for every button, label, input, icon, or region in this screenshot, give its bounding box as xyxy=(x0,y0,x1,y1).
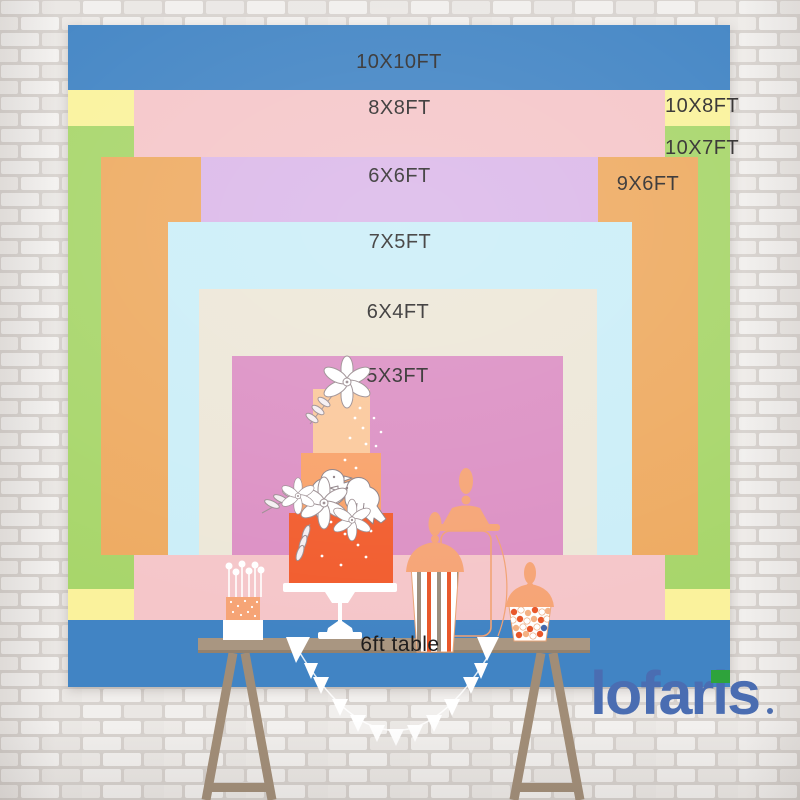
cake-pop-stand-icon xyxy=(223,561,265,641)
three-tier-cake-icon xyxy=(262,356,397,639)
logo-i-dot-accent xyxy=(711,670,730,683)
backdrop-size-chart: 10X10FT 10X8FT 10X7FT 8X8FT 9X6FT 6X6FT … xyxy=(0,0,800,800)
logo-text: lofaris xyxy=(590,659,759,727)
candy-jar-icon xyxy=(506,562,554,641)
trestle-table xyxy=(198,638,590,800)
registered-mark-icon xyxy=(767,708,773,714)
lofaris-logo: lofaris xyxy=(590,663,759,733)
table-size-label: 6ft table xyxy=(300,633,500,656)
